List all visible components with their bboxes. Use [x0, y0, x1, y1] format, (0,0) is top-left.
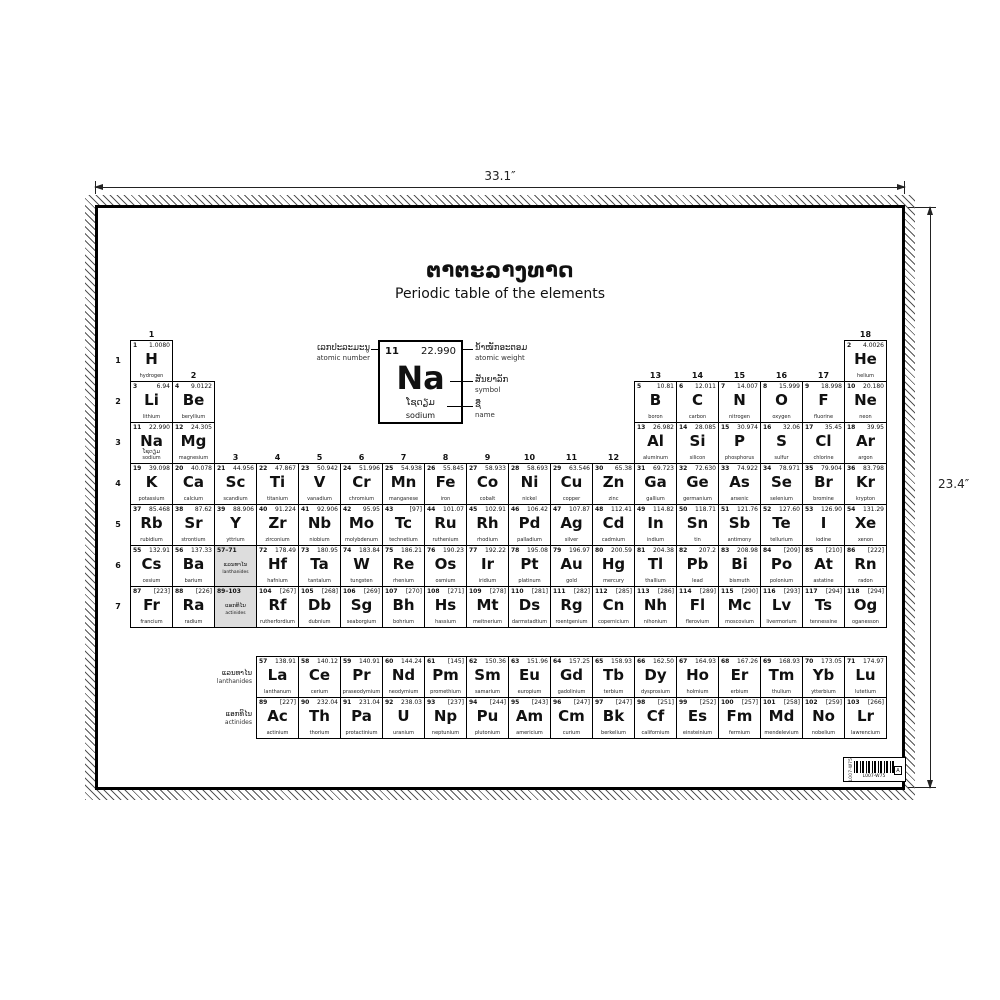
element-name: niobium [299, 537, 340, 543]
atomic-number: 35 [805, 465, 813, 472]
element-name: indium [635, 537, 676, 543]
element-name: hafnium [257, 578, 298, 584]
atomic-weight: 102.91 [485, 506, 506, 513]
element-symbol: As [719, 473, 760, 491]
element-name: silver [551, 537, 592, 543]
element-name: carbon [677, 414, 718, 420]
atomic-number: 109 [469, 588, 482, 595]
atomic-number: 50 [679, 506, 687, 513]
group-label-2: 2 [172, 371, 215, 380]
element-cell-Ca: 2040.078Cacalcium [172, 463, 215, 505]
element-cell-Pr: 59140.91Prpraseodymium [340, 656, 383, 698]
atomic-weight: [281] [532, 588, 548, 595]
group-label-14: 14 [676, 371, 719, 380]
atomic-number: 10 [847, 383, 855, 390]
atomic-weight: 63.546 [569, 465, 590, 472]
element-cell-Pa: 91231.04Paprotactinium [340, 697, 383, 739]
element-name: iridium [467, 578, 508, 584]
atomic-number: 75 [385, 547, 393, 554]
atomic-weight: 200.59 [611, 547, 632, 554]
atomic-number: 57 [259, 658, 267, 665]
series-row-label-actinides: ແອກທິໄນactinides [130, 710, 252, 726]
element-cell-Rh: 45102.91Rhrhodium [466, 504, 509, 546]
atomic-number: 6 [679, 383, 683, 390]
element-name: nobelium [803, 730, 844, 736]
atomic-number: 1 [133, 342, 137, 349]
atomic-weight: [282] [574, 588, 590, 595]
atomic-weight: 101.07 [443, 506, 464, 513]
legend-atomic-number: 11 [385, 346, 399, 357]
group-label-8: 8 [424, 453, 467, 462]
element-name: bismuth [719, 578, 760, 584]
atomic-number: 117 [805, 588, 818, 595]
element-cell-Nh: 113[286]Nhnihonium [634, 586, 677, 628]
atomic-weight: 74.922 [737, 465, 758, 472]
element-symbol: Bi [719, 555, 760, 573]
arrow-right-icon [897, 184, 906, 190]
element-symbol: Lv [761, 596, 802, 614]
element-cell-He: 24.0026Hehelium [844, 340, 887, 382]
series-name-en: actinides [215, 611, 256, 616]
atomic-number: 12 [175, 424, 183, 431]
element-symbol: Ta [299, 555, 340, 573]
element-symbol: Se [761, 473, 802, 491]
atomic-weight: 92.906 [317, 506, 338, 513]
atomic-weight: 1.0080 [149, 342, 170, 349]
element-cell-Es: 99[252]Eseinsteinium [676, 697, 719, 739]
atomic-number: 114 [679, 588, 692, 595]
element-name: rutherfordium [257, 619, 298, 625]
atomic-weight: [247] [616, 699, 632, 706]
atomic-weight: 118.71 [695, 506, 716, 513]
element-symbol: Tl [635, 555, 676, 573]
element-name: cadmium [593, 537, 634, 543]
group-label-12: 12 [592, 453, 635, 462]
element-name: strontium [173, 537, 214, 543]
element-symbol: Fm [719, 707, 760, 725]
atomic-number: 5 [637, 383, 641, 390]
atomic-number: 76 [427, 547, 435, 554]
element-symbol: Bh [383, 596, 424, 614]
element-cell-Ru: 44101.07Ruruthenium [424, 504, 467, 546]
element-cell-Ar: 1839.95Arargon [844, 422, 887, 464]
atomic-number: 7 [721, 383, 725, 390]
atomic-number: 44 [427, 506, 435, 513]
element-name: meitnerium [467, 619, 508, 625]
atomic-number: 43 [385, 506, 393, 513]
element-cell-Cs: 55132.91Cscesium [130, 545, 173, 587]
element-symbol: Cu [551, 473, 592, 491]
period-label-2: 2 [112, 397, 124, 406]
atomic-weight: [252] [700, 699, 716, 706]
element-name: phosphorus [719, 455, 760, 461]
element-name: vanadium [299, 496, 340, 502]
atomic-weight: 137.33 [191, 547, 212, 554]
element-name: plutonium [467, 730, 508, 736]
element-cell-Rn: 86[222]Rnradon [844, 545, 887, 587]
atomic-weight: 44.956 [233, 465, 254, 472]
element-cell-I: 53126.90Iiodine [802, 504, 845, 546]
atomic-number: 87 [133, 588, 141, 595]
element-cell-Nb: 4192.906Nbniobium [298, 504, 341, 546]
atomic-weight: 150.36 [485, 658, 506, 665]
element-symbol: Ni [509, 473, 550, 491]
atomic-number: 96 [553, 699, 561, 706]
atomic-weight: 30.974 [737, 424, 758, 431]
element-symbol: Og [845, 596, 886, 614]
atomic-weight: 158.93 [611, 658, 632, 665]
atomic-number: 21 [217, 465, 225, 472]
element-cell-Tb: 65158.93Tbterbium [592, 656, 635, 698]
atomic-weight: 232.04 [317, 699, 338, 706]
element-name: arsenic [719, 496, 760, 502]
element-cell-C: 612.011Ccarbon [676, 381, 719, 423]
element-cell-Ta: 73180.95Tatantalum [298, 545, 341, 587]
atomic-number: 72 [259, 547, 267, 554]
element-symbol: Co [467, 473, 508, 491]
element-cell-Ga: 3169.723Gagallium [634, 463, 677, 505]
element-name: barium [173, 578, 214, 584]
atomic-number: 36 [847, 465, 855, 472]
element-name: krypton [845, 496, 886, 502]
element-symbol: S [761, 432, 802, 450]
series-name-lao: ແອກທິໄນ [215, 603, 256, 609]
element-name: mercury [593, 578, 634, 584]
atomic-number: 60 [385, 658, 393, 665]
element-symbol: F [803, 391, 844, 409]
element-symbol: He [845, 350, 886, 368]
element-cell-Pb: 82207.2Pblead [676, 545, 719, 587]
element-name: palladium [509, 537, 550, 543]
barcode: L007-W75 L007-W75 A [843, 757, 906, 782]
element-name: roentgenium [551, 619, 592, 625]
atomic-weight: [222] [868, 547, 884, 554]
element-cell-Ge: 3272.630Gegermanium [676, 463, 719, 505]
element-cell-Hg: 80200.59Hgmercury [592, 545, 635, 587]
element-name: bohrium [383, 619, 424, 625]
series-row-label-en: actinides [130, 719, 252, 727]
element-name: fluorine [803, 414, 844, 420]
callout-line [450, 381, 473, 382]
atomic-weight: [266] [868, 699, 884, 706]
atomic-number: 59 [343, 658, 351, 665]
atomic-weight: 12.011 [695, 383, 716, 390]
group-label-15: 15 [718, 371, 761, 380]
atomic-weight: 144.24 [401, 658, 422, 665]
element-cell-Fr: 87[223]Frfrancium [130, 586, 173, 628]
atomic-number: 101 [763, 699, 776, 706]
atomic-number: 94 [469, 699, 477, 706]
element-cell-Tc: 43[97]Tctechnetium [382, 504, 425, 546]
element-cell-Dy: 66162.50Dydysprosium [634, 656, 677, 698]
element-name: calcium [173, 496, 214, 502]
element-cell-Db: 105[268]Dbdubnium [298, 586, 341, 628]
atomic-weight: 78.971 [779, 465, 800, 472]
element-cell-Lu: 71174.97Lulutetium [844, 656, 887, 698]
element-name: copernicium [593, 619, 634, 625]
element-name: gadolinium [551, 689, 592, 695]
atomic-number: 11 [133, 424, 141, 431]
element-cell-Tm: 69168.93Tmthulium [760, 656, 803, 698]
element-symbol: Sb [719, 514, 760, 532]
element-name: radium [173, 619, 214, 625]
element-name: tantalum [299, 578, 340, 584]
element-name: actinium [257, 730, 298, 736]
element-name: osmium [425, 578, 466, 584]
atomic-number: 54 [847, 506, 855, 513]
series-range: 57–71 [217, 547, 237, 554]
atomic-weight: 114.82 [653, 506, 674, 513]
element-cell-F: 918.998Ffluorine [802, 381, 845, 423]
element-symbol: Mo [341, 514, 382, 532]
atomic-number: 97 [595, 699, 603, 706]
element-symbol: Sn [677, 514, 718, 532]
callout-symbol-en: symbol [475, 386, 585, 394]
element-name: yttrium [215, 537, 256, 543]
callout-atomic-number: ເລກປະລະມະນູ atomic number [258, 344, 370, 362]
element-cell-Hs: 108[271]Hshassium [424, 586, 467, 628]
atomic-weight: [209] [784, 547, 800, 554]
element-symbol: Cl [803, 432, 844, 450]
element-cell-Ba: 56137.33Babarium [172, 545, 215, 587]
element-symbol: Pu [467, 707, 508, 725]
element-symbol: Ne [845, 391, 886, 409]
element-cell-Xe: 54131.29Xexenon [844, 504, 887, 546]
atomic-number: 89 [259, 699, 267, 706]
element-cell-Pd: 46106.42Pdpalladium [508, 504, 551, 546]
element-cell-Ds: 110[281]Dsdarmstadtium [508, 586, 551, 628]
element-name: dysprosium [635, 689, 676, 695]
element-cell-V: 2350.942Vvanadium [298, 463, 341, 505]
element-cell-As: 3374.922Asarsenic [718, 463, 761, 505]
element-symbol: Al [635, 432, 676, 450]
atomic-weight: 9.0122 [191, 383, 212, 390]
element-symbol: Sr [173, 514, 214, 532]
element-cell-Rb: 3785.468Rbrubidium [130, 504, 173, 546]
element-symbol: Po [761, 555, 802, 573]
element-symbol: P [719, 432, 760, 450]
element-cell-Cl: 1735.45Clchlorine [802, 422, 845, 464]
atomic-weight: [237] [448, 699, 464, 706]
element-cell-O: 815.999Ooxygen [760, 381, 803, 423]
element-symbol: Er [719, 666, 760, 684]
element-symbol: Lu [845, 666, 886, 684]
atomic-weight: 10.81 [657, 383, 674, 390]
element-symbol: Ar [845, 432, 886, 450]
atomic-number: 40 [259, 506, 267, 513]
atomic-number: 37 [133, 506, 141, 513]
element-cell-Ra: 88[226]Raradium [172, 586, 215, 628]
atomic-number: 116 [763, 588, 776, 595]
element-cell-Md: 101[258]Mdmendelevium [760, 697, 803, 739]
atomic-number: 65 [595, 658, 603, 665]
callout-atomic-weight-lao: ນ້ຳໜັກອະຕອມ [475, 344, 585, 354]
element-symbol: No [803, 707, 844, 725]
atomic-weight: 140.91 [359, 658, 380, 665]
atomic-weight: 238.03 [401, 699, 422, 706]
element-symbol: Os [425, 555, 466, 573]
element-cell-Th: 90232.04Ththorium [298, 697, 341, 739]
atomic-number: 70 [805, 658, 813, 665]
element-cell-Al: 1326.982Alaluminum [634, 422, 677, 464]
element-cell-Lr: 103[266]Lrlawrencium [844, 697, 887, 739]
element-name: scandium [215, 496, 256, 502]
atomic-number: 48 [595, 506, 603, 513]
element-symbol: Ag [551, 514, 592, 532]
element-name: hydrogen [131, 373, 172, 379]
element-name: erbium [719, 689, 760, 695]
atomic-number: 69 [763, 658, 771, 665]
atomic-number: 27 [469, 465, 477, 472]
element-name: tungsten [341, 578, 382, 584]
element-cell-Zr: 4091.224Zrzirconium [256, 504, 299, 546]
element-name: oganesson [845, 619, 886, 625]
group-label-9: 9 [466, 453, 509, 462]
poster-title-lao: ຕາຕະລາງທາດ [98, 258, 902, 282]
atomic-weight: [289] [700, 588, 716, 595]
group-label-5: 5 [298, 453, 341, 462]
element-symbol: Li [131, 391, 172, 409]
element-cell-Po: 84[209]Popolonium [760, 545, 803, 587]
element-symbol: Rh [467, 514, 508, 532]
element-name: praseodymium [341, 689, 382, 695]
element-name: livermorium [761, 619, 802, 625]
width-dimension-line [95, 187, 905, 188]
atomic-number: 55 [133, 547, 141, 554]
element-symbol: O [761, 391, 802, 409]
element-name: cesium [131, 578, 172, 584]
atomic-weight: 24.305 [191, 424, 212, 431]
group-label-16: 16 [760, 371, 803, 380]
atomic-weight: [270] [406, 588, 422, 595]
element-cell-Eu: 63151.96Eueuropium [508, 656, 551, 698]
element-symbol: Cd [593, 514, 634, 532]
element-symbol: Mc [719, 596, 760, 614]
atomic-weight: 127.60 [779, 506, 800, 513]
element-name: bromine [803, 496, 844, 502]
element-symbol: Hg [593, 555, 634, 573]
element-cell-Co: 2758.933Cocobalt [466, 463, 509, 505]
callout-line [447, 406, 473, 407]
element-symbol: U [383, 707, 424, 725]
atomic-weight: 65.38 [615, 465, 632, 472]
atomic-number: 86 [847, 547, 855, 554]
atomic-weight: 195.08 [527, 547, 548, 554]
element-symbol: Si [677, 432, 718, 450]
element-symbol: Db [299, 596, 340, 614]
atomic-number: 104 [259, 588, 272, 595]
atomic-number: 34 [763, 465, 771, 472]
element-name: dubnium [299, 619, 340, 625]
atomic-number: 33 [721, 465, 729, 472]
element-name: gold [551, 578, 592, 584]
group-label-17: 17 [802, 371, 845, 380]
atomic-weight: [223] [154, 588, 170, 595]
element-name: cerium [299, 689, 340, 695]
element-name: fermium [719, 730, 760, 736]
element-symbol: Cf [635, 707, 676, 725]
atomic-number: 111 [553, 588, 566, 595]
atomic-weight: 14.007 [737, 383, 758, 390]
atomic-number: 30 [595, 465, 603, 472]
element-cell-P: 1530.974Pphosphorus [718, 422, 761, 464]
element-cell-Ir: 77192.22Iriridium [466, 545, 509, 587]
element-symbol: Ir [467, 555, 508, 573]
atomic-number: 58 [301, 658, 309, 665]
atomic-number: 64 [553, 658, 561, 665]
atomic-weight: 32.06 [783, 424, 800, 431]
atomic-weight: [226] [196, 588, 212, 595]
element-cell-Li: 36.94Lilithium [130, 381, 173, 423]
atomic-weight: 6.94 [157, 383, 170, 390]
atomic-number: 42 [343, 506, 351, 513]
callout-atomic-number-lao: ເລກປະລະມະນູ [258, 344, 370, 354]
atomic-weight: 183.84 [359, 547, 380, 554]
element-cell-Cf: 98[251]Cfcalifornium [634, 697, 677, 739]
element-name: copper [551, 496, 592, 502]
element-name: thulium [761, 689, 802, 695]
atomic-weight: [290] [742, 588, 758, 595]
atomic-weight: [269] [364, 588, 380, 595]
atomic-number: 13 [637, 424, 645, 431]
atomic-number: 62 [469, 658, 477, 665]
callout-symbol-lao: ສັນຍາລັກ [475, 376, 585, 386]
element-symbol: Sm [467, 666, 508, 684]
element-symbol: K [131, 473, 172, 491]
atomic-weight: 121.76 [737, 506, 758, 513]
element-symbol: Es [677, 707, 718, 725]
atomic-number: 68 [721, 658, 729, 665]
arrow-left-icon [94, 184, 103, 190]
element-cell-K: 1939.098Kpotassium [130, 463, 173, 505]
element-name: mendelevium [761, 730, 802, 736]
callout-name: ຊື່ name [475, 401, 585, 419]
group-label-6: 6 [340, 453, 383, 462]
atomic-number: 63 [511, 658, 519, 665]
element-symbol: Rf [257, 596, 298, 614]
atomic-weight: 167.26 [737, 658, 758, 665]
element-symbol: W [341, 555, 382, 573]
element-cell-Nd: 60144.24Ndneodymium [382, 656, 425, 698]
element-symbol: Fl [677, 596, 718, 614]
atomic-weight: 83.798 [863, 465, 884, 472]
atomic-weight: [286] [658, 588, 674, 595]
element-cell-Ts: 117[294]Tstennessine [802, 586, 845, 628]
atomic-weight: [268] [322, 588, 338, 595]
element-cell-Na: 1122.990Naໂຊດຽມsodium [130, 422, 173, 464]
element-cell-Rg: 111[282]Rgroentgenium [550, 586, 593, 628]
element-name: polonium [761, 578, 802, 584]
atomic-weight: [243] [532, 699, 548, 706]
barcode-mark: A [894, 766, 902, 775]
element-name: berkelium [593, 730, 634, 736]
element-name: darmstadtium [509, 619, 550, 625]
atomic-number: 115 [721, 588, 734, 595]
element-cell-Ag: 47107.87Agsilver [550, 504, 593, 546]
element-name: ruthenium [425, 537, 466, 543]
period-label-1: 1 [112, 356, 124, 365]
atomic-weight: 39.098 [149, 465, 170, 472]
atomic-number: 67 [679, 658, 687, 665]
element-name: californium [635, 730, 676, 736]
width-dimension-label: 33.1″ [95, 169, 905, 183]
atomic-number: 91 [343, 699, 351, 706]
element-cell-Er: 68167.26Ererbium [718, 656, 761, 698]
atomic-weight: 204.38 [653, 547, 674, 554]
atomic-number: 108 [427, 588, 440, 595]
element-name: nickel [509, 496, 550, 502]
atomic-weight: 208.98 [737, 547, 758, 554]
